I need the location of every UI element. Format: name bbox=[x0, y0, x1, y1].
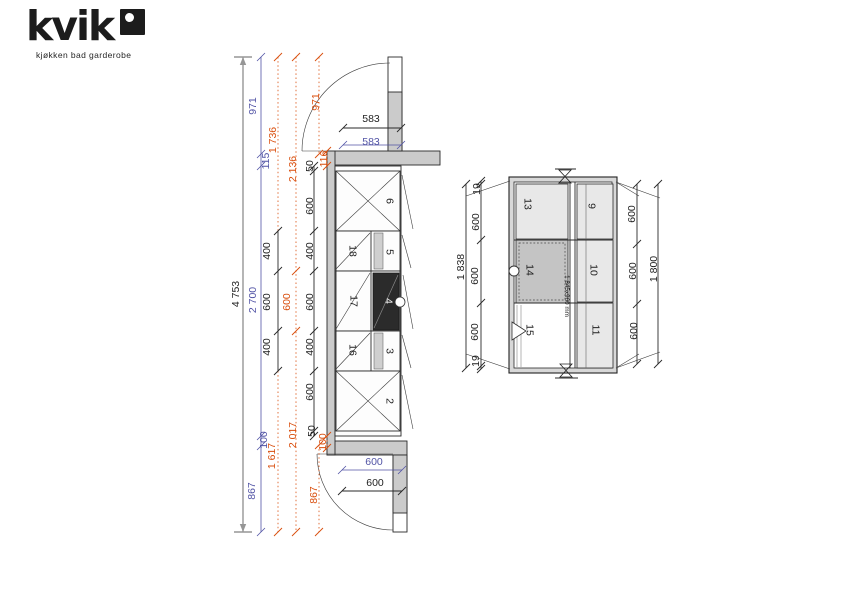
dim: 400 bbox=[305, 242, 316, 260]
dim: 19 bbox=[471, 355, 482, 367]
dim: 600 bbox=[305, 293, 316, 311]
cabinet-number-5: 5 bbox=[384, 249, 395, 255]
dim: 600 bbox=[305, 197, 316, 215]
dim: 867 bbox=[309, 486, 320, 504]
dim: 2 700 bbox=[248, 287, 259, 313]
dim: 600 bbox=[628, 262, 639, 280]
dim: 600 bbox=[305, 383, 316, 401]
dim: 19 bbox=[472, 183, 483, 195]
dim: 600 bbox=[282, 293, 293, 311]
dim: 583 bbox=[362, 114, 380, 125]
kvik-floorplan-page: { "logo": { "brand": "kvik", "tagline": … bbox=[0, 0, 842, 596]
dim: 116 bbox=[319, 151, 330, 168]
module-number-11: 11 bbox=[590, 325, 601, 336]
brand-wordmark: kvik bbox=[26, 6, 113, 47]
cabinet-number-16: 16 bbox=[347, 344, 358, 356]
dim: 115 bbox=[261, 153, 272, 170]
labels-layer: 4 7539711152 7001008671 7361 61740060040… bbox=[0, 0, 842, 596]
cabinet-number-3: 3 bbox=[384, 348, 395, 354]
brand-tagline: kjøkken bad garderobe bbox=[36, 50, 145, 60]
dim: 600 bbox=[470, 323, 481, 341]
logo-square-icon bbox=[120, 9, 145, 35]
dim-cabinet-run-total: 1 800 bbox=[649, 256, 660, 282]
logo-dot bbox=[125, 13, 134, 22]
module-number-10: 10 bbox=[588, 264, 599, 276]
dim: 400 bbox=[305, 338, 316, 356]
dim: 600 bbox=[471, 213, 482, 231]
cabinet-number-6: 6 bbox=[384, 198, 395, 204]
dim: 867 bbox=[247, 482, 258, 500]
kvik-logo: kvik kjøkken bad garderobe bbox=[26, 6, 145, 60]
dim: 600 bbox=[262, 293, 273, 311]
dim: 1 736 bbox=[268, 127, 279, 153]
module-number-14: 14 bbox=[524, 264, 535, 276]
dim: 600 bbox=[629, 322, 640, 340]
dim: 50 bbox=[307, 425, 318, 437]
dim: 2 136 bbox=[288, 156, 299, 182]
cabinet-number-18: 18 bbox=[347, 245, 358, 257]
dim: 600 bbox=[366, 478, 384, 489]
dim: 583 bbox=[362, 137, 380, 148]
dim: 971 bbox=[248, 97, 259, 115]
cabinet-number-2: 2 bbox=[384, 398, 395, 404]
dim-overall-height: 4 753 bbox=[231, 281, 242, 307]
cabinet-number-17: 17 bbox=[348, 295, 359, 307]
dim: 1 617 bbox=[267, 443, 278, 469]
dim: 100 bbox=[318, 433, 329, 451]
dim: 50 bbox=[305, 160, 316, 172]
dim: 400 bbox=[262, 242, 273, 260]
dim: 2 017 bbox=[288, 422, 299, 448]
dim-room-height-total: 1 838 bbox=[456, 254, 467, 280]
dim: 400 bbox=[262, 338, 273, 356]
floor-area-size-label: 1 845x960 mm bbox=[563, 275, 569, 317]
module-number-13: 13 bbox=[522, 198, 533, 210]
dim: 600 bbox=[365, 457, 383, 468]
dim: 971 bbox=[311, 93, 322, 111]
dim: 600 bbox=[470, 267, 481, 285]
module-number-15: 15 bbox=[524, 324, 535, 336]
module-number-9: 9 bbox=[586, 203, 597, 209]
cabinet-number-4: 4 bbox=[383, 298, 394, 304]
dim: 600 bbox=[627, 205, 638, 223]
